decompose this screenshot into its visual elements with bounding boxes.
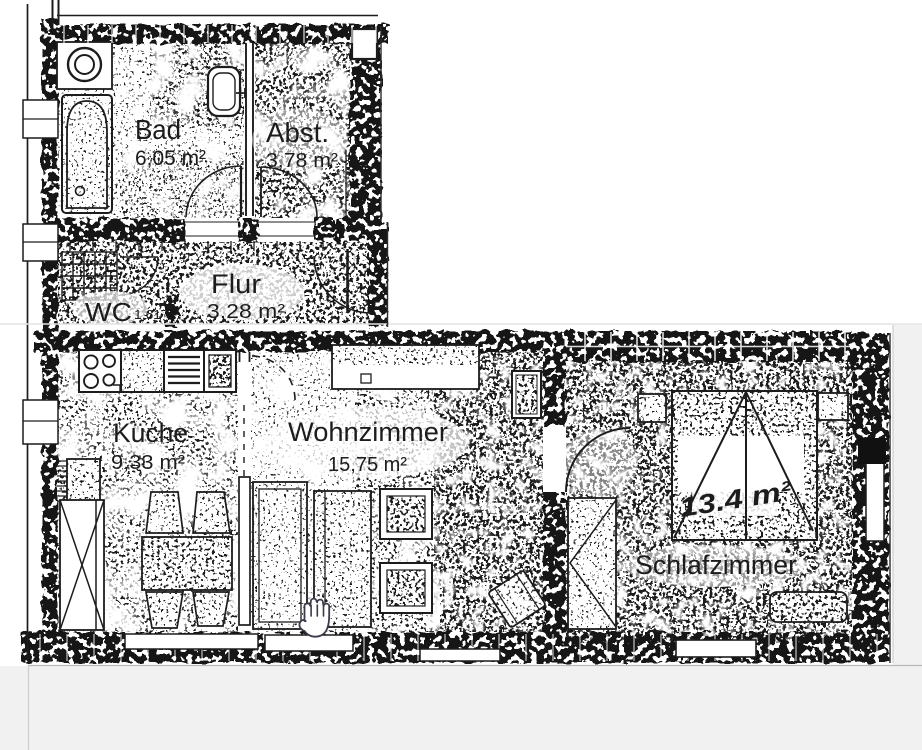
svg-text:6,05 m²: 6,05 m² xyxy=(135,147,206,170)
svg-text:1,61: 1,61 xyxy=(134,307,161,322)
svg-text:3,78 m²: 3,78 m² xyxy=(266,150,338,172)
svg-text:3,28 m²: 3,28 m² xyxy=(207,301,285,323)
svg-text:Abst.: Abst. xyxy=(266,117,329,148)
svg-text:Flur: Flur xyxy=(211,269,261,299)
svg-text:Küche: Küche xyxy=(113,418,188,448)
svg-text:Bad: Bad xyxy=(135,114,181,145)
svg-text:Wohnzimmer: Wohnzimmer xyxy=(288,417,448,447)
svg-text:15,75 m²: 15,75 m² xyxy=(328,454,407,476)
svg-text:9,33 m²: 9,33 m² xyxy=(111,452,185,474)
svg-text:Schlafzimmer: Schlafzimmer xyxy=(635,550,797,580)
svg-text:WC: WC xyxy=(85,297,132,327)
